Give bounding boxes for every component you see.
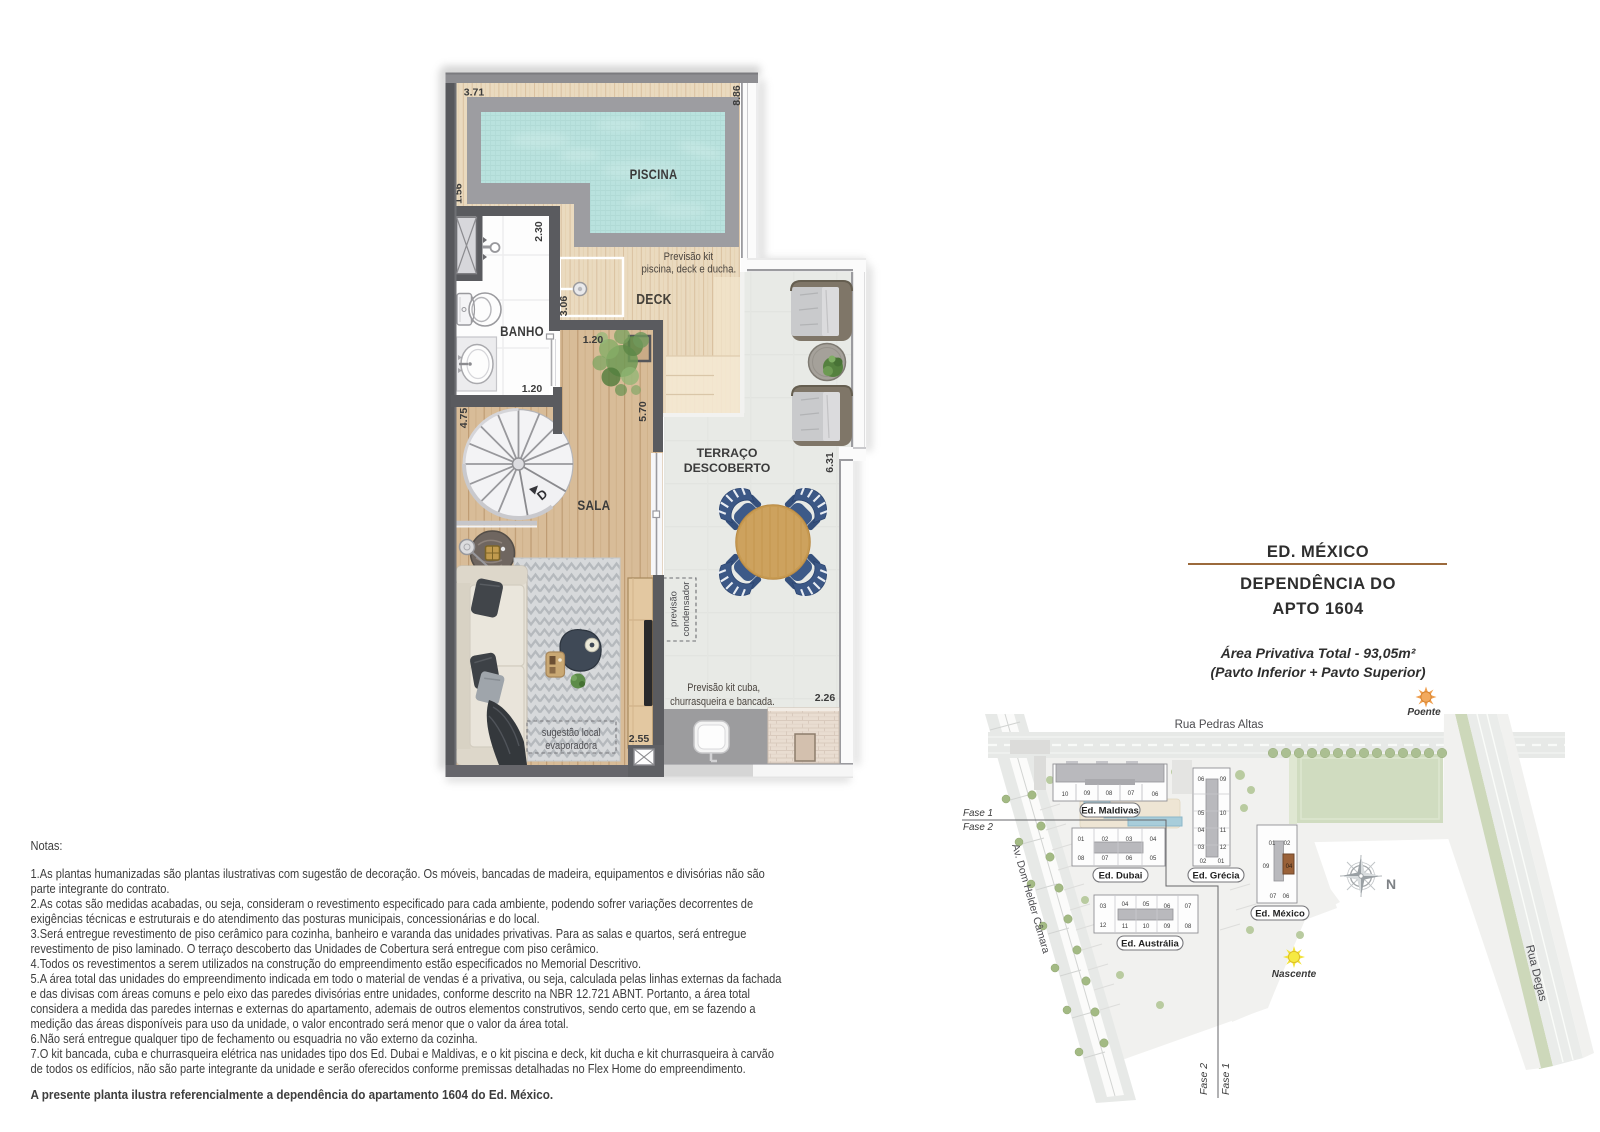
svg-text:07: 07 (1185, 904, 1192, 910)
svg-text:2.26: 2.26 (815, 692, 836, 704)
svg-text:Rua Pedras Altas: Rua Pedras Altas (1175, 719, 1264, 731)
svg-text:sugestão local: sugestão local (542, 727, 601, 739)
svg-text:Ed. Grécia: Ed. Grécia (1193, 871, 1241, 882)
svg-text:8.86: 8.86 (731, 85, 743, 106)
svg-text:revestimento de piso laminado.: revestimento de piso laminado. O terraço… (31, 941, 599, 956)
svg-text:08: 08 (1078, 856, 1085, 862)
svg-text:04: 04 (1150, 837, 1157, 843)
svg-text:11: 11 (1220, 828, 1227, 834)
svg-text:5.A área total das unidades do: 5.A área total das unidades do empreendi… (31, 971, 782, 986)
svg-text:09: 09 (1220, 777, 1227, 783)
svg-text:03: 03 (1126, 837, 1133, 843)
svg-text:3.Será entregue revestimento d: 3.Será entregue revestimento de piso cer… (31, 926, 747, 941)
svg-text:Previsão kit cuba,: Previsão kit cuba, (687, 682, 760, 694)
svg-text:01: 01 (1078, 837, 1085, 843)
svg-text:1.As plantas humanizadas são p: 1.As plantas humanizadas são plantas ilu… (31, 866, 766, 881)
svg-text:APTO 1604: APTO 1604 (1272, 600, 1364, 618)
svg-text:Ed. Maldivas: Ed. Maldivas (1081, 806, 1139, 817)
svg-text:09: 09 (1084, 791, 1091, 797)
svg-text:4.Todos os revestimentos a ser: 4.Todos os revestimentos a serem utiliza… (31, 956, 642, 971)
svg-text:01: 01 (1269, 841, 1276, 847)
svg-text:03: 03 (1198, 845, 1205, 851)
svg-text:02: 02 (1284, 841, 1291, 847)
svg-text:BANHO: BANHO (500, 323, 544, 339)
svg-text:10: 10 (1062, 792, 1069, 798)
svg-text:11: 11 (1122, 924, 1129, 930)
svg-text:Fase 2: Fase 2 (963, 822, 994, 833)
svg-text:parte integrante do contrato.: parte integrante do contrato. (31, 881, 170, 896)
svg-text:N: N (1386, 876, 1396, 892)
svg-text:considera a medida das paredes: considera a medida das paredes internas … (31, 1001, 756, 1016)
svg-text:2.As cotas são medidas acabada: 2.As cotas são medidas acabadas, ou seja… (31, 896, 754, 911)
svg-text:Ed. Dubai: Ed. Dubai (1099, 871, 1143, 882)
svg-text:previsão: previsão (669, 591, 680, 627)
svg-text:1.20: 1.20 (583, 334, 604, 346)
svg-text:piscina, deck e ducha.: piscina, deck e ducha. (641, 263, 736, 276)
svg-text:A presente planta ilustra refe: A presente planta ilustra referencialmen… (31, 1087, 554, 1102)
svg-text:medição das áreas disponíveis: medição das áreas disponíveis para uso d… (31, 1016, 569, 1031)
svg-text:DEPENDÊNCIA DO: DEPENDÊNCIA DO (1240, 574, 1396, 593)
svg-text:10: 10 (1143, 924, 1150, 930)
svg-text:(Pavto Inferior + Pavto Superi: (Pavto Inferior + Pavto Superior) (1210, 664, 1425, 680)
svg-text:10: 10 (1220, 811, 1227, 817)
svg-text:3.71: 3.71 (464, 87, 485, 99)
svg-text:4.75: 4.75 (458, 408, 470, 429)
svg-text:Fase 2: Fase 2 (1198, 1063, 1210, 1095)
svg-text:SALA: SALA (577, 497, 610, 513)
svg-text:Fase 1: Fase 1 (963, 808, 993, 819)
svg-text:01: 01 (1218, 859, 1225, 865)
svg-text:06: 06 (1164, 904, 1171, 910)
svg-text:08: 08 (1185, 924, 1192, 930)
svg-text:2.30: 2.30 (533, 221, 545, 242)
svg-text:09: 09 (1263, 864, 1270, 870)
svg-text:ED. MÉXICO: ED. MÉXICO (1267, 542, 1369, 561)
svg-text:evaporadora: evaporadora (545, 740, 597, 752)
svg-text:03: 03 (1100, 904, 1107, 910)
svg-text:Ed. Austrália: Ed. Austrália (1121, 939, 1179, 950)
svg-text:6.Não será entregue qualquer t: 6.Não será entregue qualquer tipo de fec… (31, 1031, 478, 1046)
svg-text:04: 04 (1286, 864, 1293, 870)
svg-text:1.20: 1.20 (522, 383, 543, 395)
svg-text:04: 04 (1198, 828, 1205, 834)
svg-text:05: 05 (1150, 856, 1157, 862)
svg-text:09: 09 (1164, 924, 1171, 930)
svg-text:Previsão kit: Previsão kit (664, 250, 714, 263)
svg-text:02: 02 (1200, 859, 1207, 865)
svg-text:04: 04 (1122, 902, 1129, 908)
svg-text:07: 07 (1102, 856, 1109, 862)
svg-text:PISCINA: PISCINA (630, 167, 678, 182)
svg-text:Nascente: Nascente (1272, 969, 1317, 980)
svg-text:06: 06 (1198, 777, 1205, 783)
svg-text:e das divisas com áreas comuns: e das divisas com áreas comuns e pelo ei… (31, 986, 751, 1001)
svg-text:Fase 1: Fase 1 (1220, 1063, 1232, 1095)
svg-text:churrasqueira e bancada.: churrasqueira e bancada. (670, 696, 775, 708)
svg-text:7.O kit bancada, cuba e churra: 7.O kit bancada, cuba e churrasqueira el… (31, 1046, 775, 1061)
svg-text:07: 07 (1128, 791, 1135, 797)
svg-text:exigências técnicas e estrutur: exigências técnicas e estruturais e do a… (31, 911, 540, 926)
svg-text:12: 12 (1100, 923, 1107, 929)
svg-text:Área Privativa Total - 93,05m²: Área Privativa Total - 93,05m² (1220, 645, 1416, 661)
svg-text:12: 12 (1220, 845, 1227, 851)
svg-text:08: 08 (1106, 791, 1113, 797)
svg-text:de todos os edifícios, não são: de todos os edifícios, não são parte int… (31, 1061, 746, 1076)
svg-text:5.70: 5.70 (637, 401, 649, 422)
svg-text:05: 05 (1143, 902, 1150, 908)
svg-text:DESCOBERTO: DESCOBERTO (684, 461, 771, 475)
svg-text:condensador: condensador (681, 582, 692, 637)
svg-text:Notas:: Notas: (31, 838, 63, 853)
svg-text:06: 06 (1283, 894, 1290, 900)
svg-text:05: 05 (1198, 811, 1205, 817)
svg-text:02: 02 (1102, 837, 1109, 843)
svg-text:DECK: DECK (636, 291, 672, 307)
svg-text:Poente: Poente (1407, 707, 1441, 718)
svg-text:6.31: 6.31 (824, 452, 836, 473)
svg-text:06: 06 (1152, 792, 1159, 798)
svg-text:Ed. México: Ed. México (1255, 909, 1305, 920)
svg-text:07: 07 (1270, 894, 1277, 900)
svg-text:06: 06 (1126, 856, 1133, 862)
svg-text:TERRAÇO: TERRAÇO (697, 446, 758, 460)
svg-text:2.55: 2.55 (629, 733, 650, 745)
